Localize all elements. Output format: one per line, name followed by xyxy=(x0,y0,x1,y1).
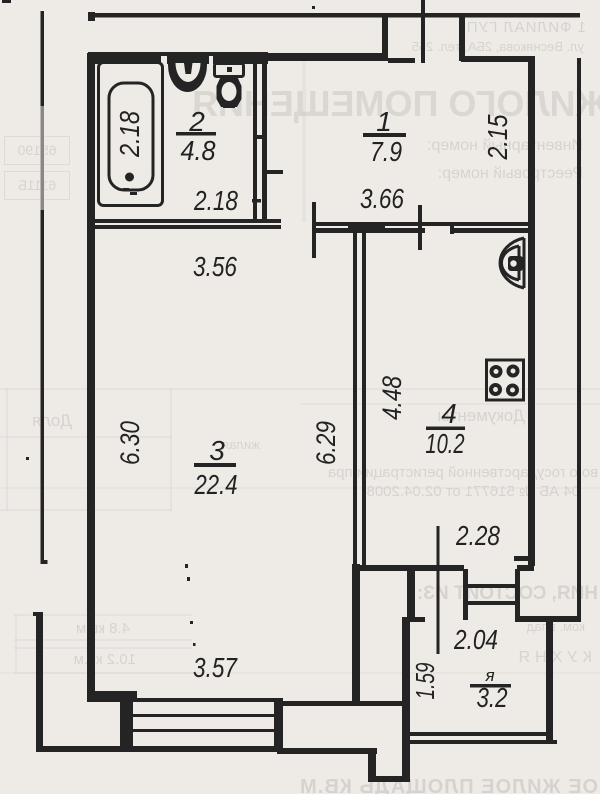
svg-text:6.30: 6.30 xyxy=(115,421,145,465)
svg-text:7.9: 7.9 xyxy=(370,137,402,168)
svg-text:3: 3 xyxy=(209,435,225,466)
svg-text:4.8: 4.8 xyxy=(180,135,215,167)
svg-text:3.66: 3.66 xyxy=(360,184,405,215)
svg-text:2.18: 2.18 xyxy=(115,110,145,157)
svg-text:3.57: 3.57 xyxy=(193,653,238,684)
svg-text:2.15: 2.15 xyxy=(483,114,514,161)
svg-text:3.56: 3.56 xyxy=(193,252,238,283)
svg-text:4: 4 xyxy=(441,398,457,429)
svg-text:10.2: 10.2 xyxy=(425,429,465,460)
svg-text:2.04: 2.04 xyxy=(453,625,498,656)
svg-text:6.29: 6.29 xyxy=(311,421,341,465)
svg-text:1: 1 xyxy=(376,106,392,137)
svg-text:2.18: 2.18 xyxy=(193,186,238,217)
svg-text:4.48: 4.48 xyxy=(377,376,407,420)
svg-text:1.59: 1.59 xyxy=(410,662,440,699)
svg-text:2.28: 2.28 xyxy=(455,521,500,552)
svg-text:22.4: 22.4 xyxy=(194,470,238,501)
